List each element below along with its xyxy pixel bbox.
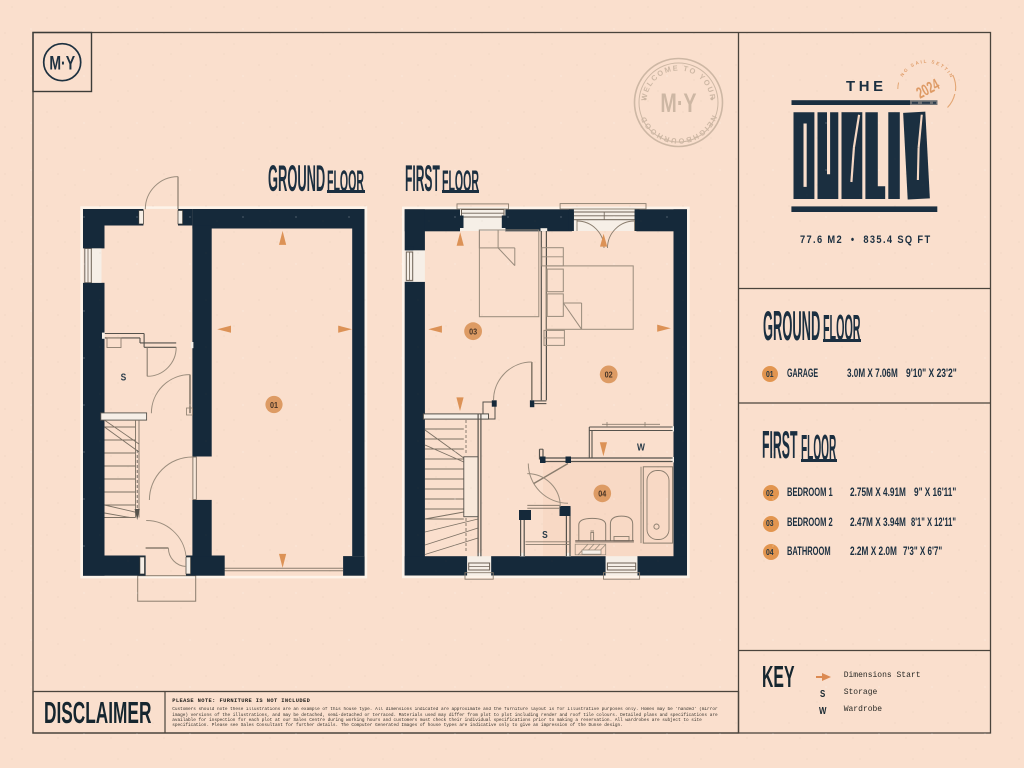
svg-text:01: 01 <box>270 400 279 410</box>
svg-text:03: 03 <box>469 327 478 337</box>
svg-text:TING SAIL SETTING: TING SAIL SETTING <box>0 0 955 79</box>
svg-text:02: 02 <box>605 370 614 380</box>
svg-text:S: S <box>121 372 127 384</box>
svg-text:2024: 2024 <box>913 75 942 102</box>
svg-text:M·Y: M·Y <box>49 52 75 74</box>
svg-text:S: S <box>542 529 548 541</box>
svg-text:W: W <box>637 442 645 454</box>
svg-text:M·Y: M·Y <box>660 89 696 119</box>
svg-text:04: 04 <box>598 489 607 499</box>
